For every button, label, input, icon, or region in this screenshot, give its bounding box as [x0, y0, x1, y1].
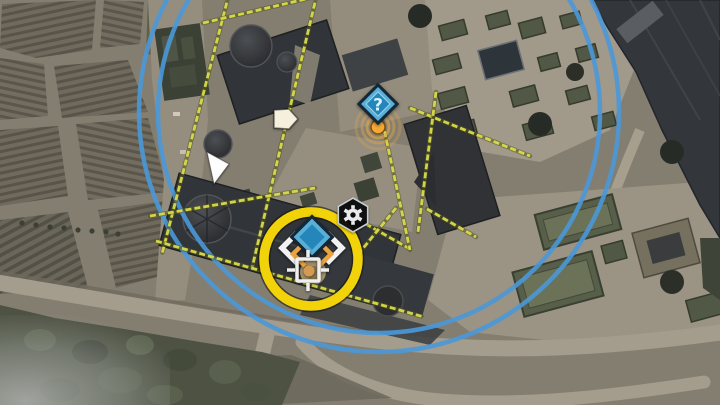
question-mark-glyph: ?	[373, 96, 383, 116]
gear-icon[interactable]	[338, 198, 367, 232]
map-view[interactable]: ?	[0, 0, 720, 405]
map-screen: ?	[0, 0, 720, 405]
